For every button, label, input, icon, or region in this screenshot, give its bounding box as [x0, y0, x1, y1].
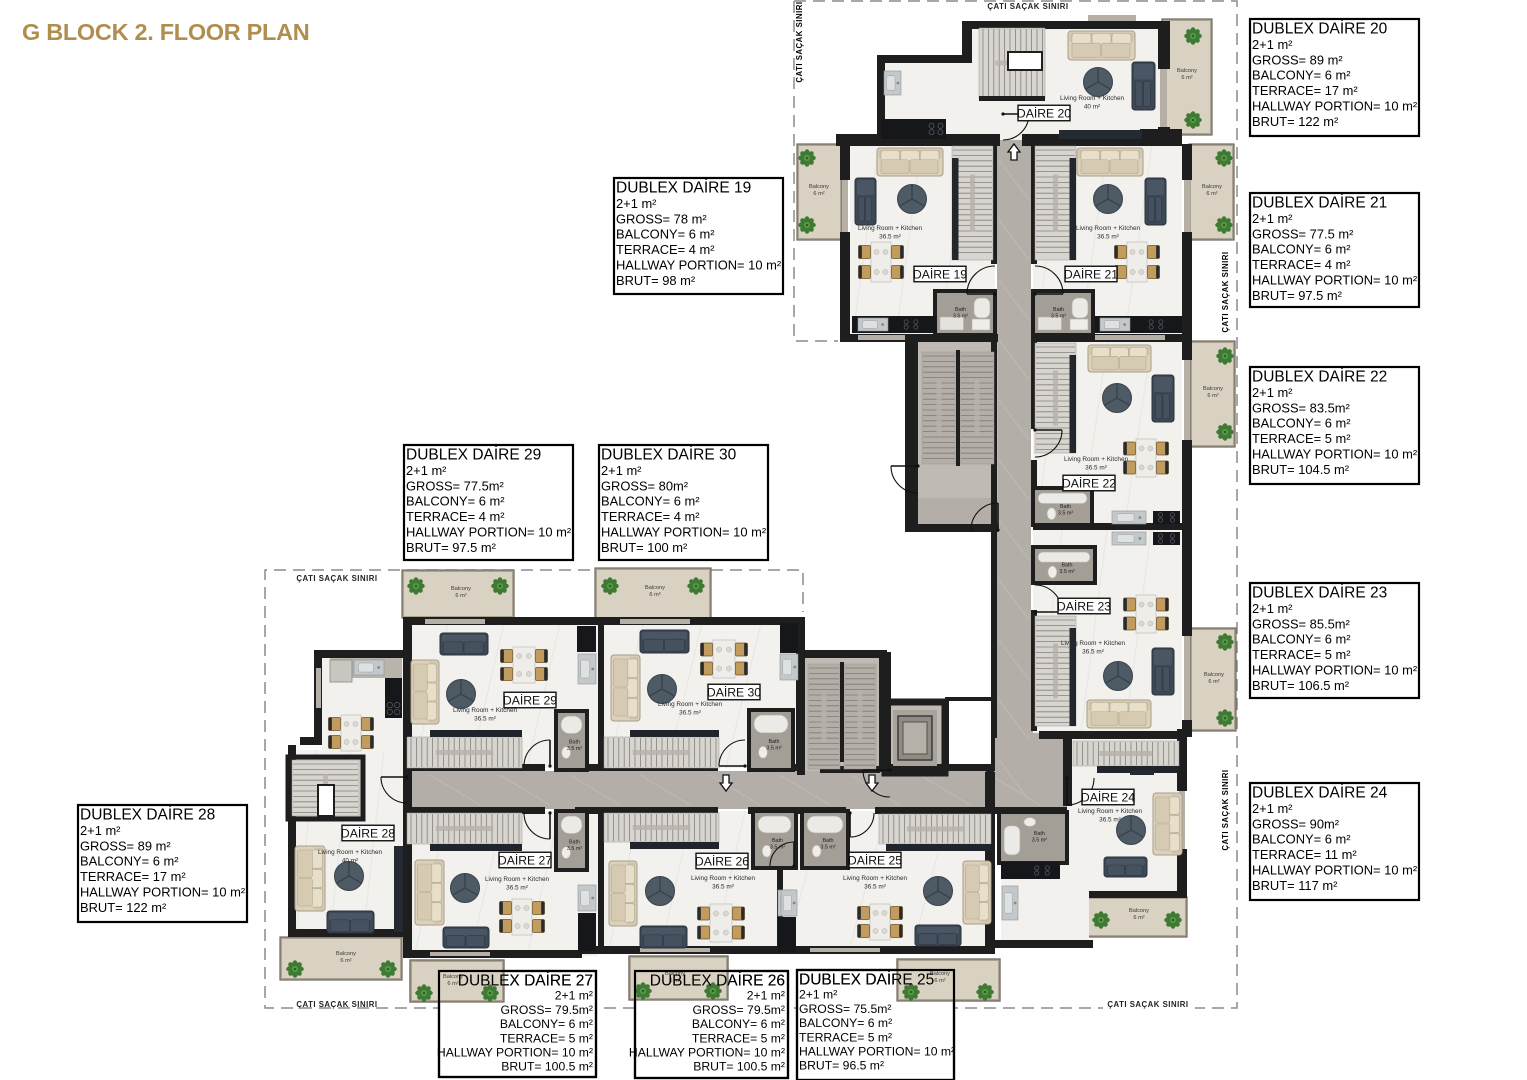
svg-text:ÇATI SAÇAK SINIRI: ÇATI SAÇAK SINIRI: [1221, 769, 1230, 850]
svg-text:6 m²: 6 m²: [1206, 191, 1217, 197]
svg-text:2+1 m²: 2+1 m²: [80, 823, 121, 838]
svg-text:6 m²: 6 m²: [340, 958, 351, 964]
svg-text:DAİRE 29: DAİRE 29: [503, 693, 557, 707]
svg-text:3.5 m²: 3.5 m²: [770, 845, 785, 851]
svg-text:HALLWAY PORTION= 10 m²: HALLWAY PORTION= 10 m²: [1252, 863, 1418, 878]
svg-text:BALCONY= 6 m²: BALCONY= 6 m²: [80, 854, 179, 869]
svg-text:DAİRE 27: DAİRE 27: [498, 853, 552, 867]
svg-text:3.5 m²: 3.5 m²: [766, 745, 781, 751]
svg-text:DUBLEX DAİRE 27: DUBLEX DAİRE 27: [458, 972, 593, 990]
svg-text:TERRACE= 17 m²: TERRACE= 17 m²: [80, 869, 186, 884]
svg-text:ÇATI SAÇAK SINIRI: ÇATI SAÇAK SINIRI: [1107, 1000, 1188, 1009]
svg-text:GROSS= 89 m²: GROSS= 89 m²: [80, 838, 171, 853]
svg-text:GROSS= 77.5 m²: GROSS= 77.5 m²: [1252, 226, 1354, 241]
svg-text:DAİRE 21: DAİRE 21: [1064, 267, 1118, 281]
svg-text:HALLWAY PORTION= 10 m²: HALLWAY PORTION= 10 m²: [1252, 99, 1418, 114]
svg-text:Bath: Bath: [955, 307, 966, 313]
svg-text:BRUT= 96.5 m²: BRUT= 96.5 m²: [799, 1059, 884, 1073]
svg-text:HALLWAY PORTION= 10 m²: HALLWAY PORTION= 10 m²: [1252, 663, 1418, 678]
svg-text:BRUT= 98 m²: BRUT= 98 m²: [616, 273, 696, 288]
svg-text:Bath: Bath: [569, 739, 580, 745]
svg-text:DUBLEX DAİRE 26: DUBLEX DAİRE 26: [650, 972, 785, 990]
svg-text:DUBLEX DAİRE 30: DUBLEX DAİRE 30: [601, 446, 737, 464]
svg-text:BRUT= 97.5 m²: BRUT= 97.5 m²: [406, 540, 497, 555]
svg-text:DUBLEX DAİRE 25: DUBLEX DAİRE 25: [799, 971, 934, 989]
svg-text:TERRACE= 4 m²: TERRACE= 4 m²: [616, 242, 715, 257]
svg-text:36.5 m²: 36.5 m²: [1082, 649, 1104, 656]
svg-text:GROSS= 75.5m²: GROSS= 75.5m²: [799, 1002, 891, 1016]
svg-text:HALLWAY PORTION= 10 m²: HALLWAY PORTION= 10 m²: [601, 525, 767, 540]
svg-text:BALCONY= 6 m²: BALCONY= 6 m²: [1252, 242, 1351, 257]
svg-text:2+1 m²: 2+1 m²: [1252, 37, 1293, 52]
svg-text:40 m²: 40 m²: [342, 858, 358, 865]
svg-text:BALCONY= 6 m²: BALCONY= 6 m²: [692, 1017, 785, 1031]
svg-text:BALCONY= 6 m²: BALCONY= 6 m²: [1252, 416, 1351, 431]
svg-text:HALLWAY PORTION= 10 m²: HALLWAY PORTION= 10 m²: [437, 1046, 593, 1060]
svg-text:2+1 m²: 2+1 m²: [1252, 801, 1293, 816]
svg-text:TERRACE= 11 m²: TERRACE= 11 m²: [1252, 847, 1357, 862]
svg-text:TERRACE= 4 m²: TERRACE= 4 m²: [601, 509, 700, 524]
svg-text:Living Room + Kitchen: Living Room + Kitchen: [658, 701, 723, 708]
svg-text:TERRACE= 5 m²: TERRACE= 5 m²: [799, 1030, 892, 1044]
svg-text:36.5 m²: 36.5 m²: [506, 885, 528, 892]
svg-text:DAİRE 24: DAİRE 24: [1081, 790, 1135, 804]
svg-text:Living Room + Kitchen: Living Room + Kitchen: [843, 875, 908, 882]
svg-text:36.5 m²: 36.5 m²: [679, 710, 701, 717]
svg-text:Balcony: Balcony: [645, 585, 665, 591]
svg-text:TERRACE= 4 m²: TERRACE= 4 m²: [406, 509, 505, 524]
svg-text:DUBLEX DAİRE 28: DUBLEX DAİRE 28: [80, 806, 215, 824]
svg-text:6 m²: 6 m²: [1133, 915, 1144, 921]
svg-text:BRUT= 106.5 m²: BRUT= 106.5 m²: [1252, 678, 1350, 693]
svg-text:3.5 m²: 3.5 m²: [1032, 838, 1047, 844]
svg-text:40 m²: 40 m²: [1084, 104, 1100, 111]
svg-text:BALCONY= 6 m²: BALCONY= 6 m²: [1252, 68, 1351, 83]
svg-text:DAİRE 25: DAİRE 25: [848, 853, 902, 867]
svg-text:2+1 m²: 2+1 m²: [1252, 385, 1293, 400]
svg-text:Living Room + Kitchen: Living Room + Kitchen: [485, 876, 550, 883]
svg-text:Balcony: Balcony: [1202, 184, 1222, 190]
svg-text:6 m²: 6 m²: [1208, 679, 1219, 685]
svg-text:GROSS= 85.5m²: GROSS= 85.5m²: [1252, 616, 1350, 631]
svg-text:6 m²: 6 m²: [934, 978, 945, 984]
svg-text:BRUT= 100 m²: BRUT= 100 m²: [601, 540, 688, 555]
svg-text:DUBLEX DAİRE 19: DUBLEX DAİRE 19: [616, 179, 751, 197]
svg-text:HALLWAY PORTION= 10 m²: HALLWAY PORTION= 10 m²: [406, 525, 572, 540]
svg-text:TERRACE= 4 m²: TERRACE= 4 m²: [1252, 257, 1351, 272]
svg-text:Living Room + Kitchen: Living Room + Kitchen: [1060, 95, 1125, 102]
svg-text:BRUT= 104.5 m²: BRUT= 104.5 m²: [1252, 462, 1350, 477]
svg-text:Balcony: Balcony: [1129, 908, 1149, 914]
svg-text:TERRACE= 5 m²: TERRACE= 5 m²: [1252, 431, 1351, 446]
svg-text:ÇATI SAÇAK SINIRI: ÇATI SAÇAK SINIRI: [296, 574, 377, 583]
svg-text:Balcony: Balcony: [1177, 68, 1197, 74]
svg-text:DUBLEX DAİRE 24: DUBLEX DAİRE 24: [1252, 784, 1388, 802]
svg-text:36.5 m²: 36.5 m²: [1099, 817, 1121, 824]
svg-text:Living Room + Kitchen: Living Room + Kitchen: [318, 849, 383, 856]
svg-text:Living Room + Kitchen: Living Room + Kitchen: [453, 707, 518, 714]
svg-text:6 m²: 6 m²: [455, 593, 466, 599]
svg-text:BRUT= 97.5 m²: BRUT= 97.5 m²: [1252, 288, 1343, 303]
svg-text:3.5 m²: 3.5 m²: [1059, 569, 1074, 575]
svg-text:GROSS= 78 m²: GROSS= 78 m²: [616, 211, 707, 226]
svg-text:3.5 m²: 3.5 m²: [953, 314, 968, 320]
svg-text:HALLWAY PORTION= 10 m²: HALLWAY PORTION= 10 m²: [799, 1045, 955, 1059]
svg-text:ÇATI SAÇAK SINIRI: ÇATI SAÇAK SINIRI: [795, 1, 804, 82]
svg-text:36.5 m²: 36.5 m²: [712, 884, 734, 891]
svg-text:36.5 m²: 36.5 m²: [474, 716, 496, 723]
svg-text:Bath: Bath: [1034, 831, 1045, 837]
svg-text:DUBLEX DAİRE 21: DUBLEX DAİRE 21: [1252, 194, 1387, 212]
svg-text:HALLWAY PORTION= 10 m²: HALLWAY PORTION= 10 m²: [616, 258, 782, 273]
svg-text:GROSS= 77.5m²: GROSS= 77.5m²: [406, 478, 504, 493]
svg-text:2+1 m²: 2+1 m²: [1252, 601, 1293, 616]
svg-text:Living Room + Kitchen: Living Room + Kitchen: [1061, 640, 1126, 647]
svg-text:36.5 m²: 36.5 m²: [1085, 465, 1107, 472]
svg-text:2+1 m²: 2+1 m²: [406, 463, 447, 478]
svg-text:HALLWAY PORTION= 10 m²: HALLWAY PORTION= 10 m²: [629, 1046, 785, 1060]
svg-text:TERRACE= 5 m²: TERRACE= 5 m²: [500, 1031, 593, 1045]
svg-text:Living Room + Kitchen: Living Room + Kitchen: [1064, 456, 1129, 463]
svg-text:Bath: Bath: [1053, 307, 1064, 313]
svg-text:DUBLEX DAİRE 29: DUBLEX DAİRE 29: [406, 446, 541, 464]
svg-text:ÇATI SAÇAK SINIRI: ÇATI SAÇAK SINIRI: [296, 1000, 377, 1009]
svg-text:Living Room + Kitchen: Living Room + Kitchen: [858, 225, 923, 232]
svg-text:TERRACE= 5 m²: TERRACE= 5 m²: [1252, 647, 1351, 662]
svg-text:Living Room + Kitchen: Living Room + Kitchen: [1078, 808, 1143, 815]
svg-text:DAİRE 20: DAİRE 20: [1017, 106, 1071, 120]
svg-text:BRUT= 122 m²: BRUT= 122 m²: [80, 900, 167, 915]
svg-text:DAİRE 26: DAİRE 26: [695, 854, 749, 868]
svg-text:Balcony: Balcony: [809, 184, 829, 190]
svg-text:GROSS= 83.5m²: GROSS= 83.5m²: [1252, 400, 1350, 415]
svg-text:GROSS= 79.5m²: GROSS= 79.5m²: [501, 1003, 593, 1017]
svg-text:36.5 m²: 36.5 m²: [1097, 234, 1119, 241]
svg-text:GROSS= 79.5m²: GROSS= 79.5m²: [693, 1003, 785, 1017]
svg-text:BRUT= 100.5 m²: BRUT= 100.5 m²: [693, 1060, 785, 1074]
svg-text:Balcony: Balcony: [1204, 672, 1224, 678]
svg-text:Bath: Bath: [1061, 563, 1072, 569]
svg-text:Bath: Bath: [569, 839, 580, 845]
svg-text:HALLWAY PORTION= 10 m²: HALLWAY PORTION= 10 m²: [1252, 273, 1418, 288]
svg-text:3.5 m²: 3.5 m²: [820, 845, 835, 851]
svg-text:DAİRE 23: DAİRE 23: [1057, 599, 1111, 613]
svg-text:G BLOCK 2. FLOOR PLAN: G BLOCK 2. FLOOR PLAN: [22, 19, 309, 45]
svg-text:BRUT= 117 m²: BRUT= 117 m²: [1252, 878, 1338, 893]
svg-text:ÇATI SAÇAK SINIRI: ÇATI SAÇAK SINIRI: [1221, 251, 1230, 332]
svg-text:Bath: Bath: [822, 838, 833, 844]
svg-text:TERRACE= 17 m²: TERRACE= 17 m²: [1252, 83, 1358, 98]
svg-text:6 m²: 6 m²: [1181, 75, 1192, 81]
svg-text:3.5 m²: 3.5 m²: [567, 746, 582, 752]
svg-text:Bath: Bath: [768, 739, 779, 745]
svg-text:HALLWAY PORTION= 10 m²: HALLWAY PORTION= 10 m²: [80, 885, 246, 900]
svg-text:Bath: Bath: [1060, 504, 1071, 510]
svg-text:BALCONY= 6 m²: BALCONY= 6 m²: [500, 1017, 593, 1031]
svg-text:2+1 m²: 2+1 m²: [601, 463, 642, 478]
svg-text:BALCONY= 6 m²: BALCONY= 6 m²: [406, 494, 505, 509]
svg-text:2+1 m²: 2+1 m²: [799, 988, 837, 1002]
svg-text:Living Room + Kitchen: Living Room + Kitchen: [691, 875, 756, 882]
svg-text:Balcony: Balcony: [1203, 386, 1223, 392]
svg-text:3.5 m²: 3.5 m²: [567, 846, 582, 852]
svg-text:2+1 m²: 2+1 m²: [616, 196, 657, 211]
svg-text:DUBLEX DAİRE 22: DUBLEX DAİRE 22: [1252, 368, 1387, 386]
svg-text:HALLWAY PORTION= 10 m²: HALLWAY PORTION= 10 m²: [1252, 447, 1418, 462]
svg-text:36.5 m²: 36.5 m²: [879, 234, 901, 241]
svg-text:BRUT= 100.5 m²: BRUT= 100.5 m²: [501, 1060, 593, 1074]
svg-text:BALCONY= 6 m²: BALCONY= 6 m²: [616, 227, 715, 242]
svg-text:GROSS= 89 m²: GROSS= 89 m²: [1252, 52, 1343, 67]
svg-text:6 m²: 6 m²: [649, 592, 660, 598]
svg-text:ÇATI SAÇAK SINIRI: ÇATI SAÇAK SINIRI: [987, 2, 1068, 11]
svg-text:Balcony: Balcony: [451, 586, 471, 592]
svg-text:BRUT= 122 m²: BRUT= 122 m²: [1252, 114, 1339, 129]
svg-text:DAİRE 30: DAİRE 30: [707, 685, 761, 699]
svg-text:BALCONY= 6 m²: BALCONY= 6 m²: [1252, 832, 1351, 847]
svg-text:TERRACE= 5 m²: TERRACE= 5 m²: [692, 1031, 785, 1045]
svg-text:Bath: Bath: [772, 838, 783, 844]
svg-text:DUBLEX DAİRE 23: DUBLEX DAİRE 23: [1252, 584, 1387, 602]
svg-text:DAİRE 22: DAİRE 22: [1062, 476, 1116, 490]
svg-text:DUBLEX DAİRE 20: DUBLEX DAİRE 20: [1252, 20, 1388, 38]
svg-text:Living Room + Kitchen: Living Room + Kitchen: [1076, 225, 1141, 232]
svg-text:BALCONY= 6 m²: BALCONY= 6 m²: [601, 494, 700, 509]
svg-text:6 m²: 6 m²: [813, 191, 824, 197]
svg-text:GROSS= 90m²: GROSS= 90m²: [1252, 816, 1340, 831]
svg-text:DAİRE 19: DAİRE 19: [913, 267, 967, 281]
svg-text:36.5 m²: 36.5 m²: [864, 884, 886, 891]
svg-text:BALCONY= 6 m²: BALCONY= 6 m²: [1252, 632, 1351, 647]
svg-text:3.5 m²: 3.5 m²: [1058, 511, 1073, 517]
svg-text:2+1 m²: 2+1 m²: [555, 989, 593, 1003]
svg-text:DAİRE 28: DAİRE 28: [341, 826, 395, 840]
svg-text:6 m²: 6 m²: [1207, 393, 1218, 399]
svg-text:2+1 m²: 2+1 m²: [1252, 211, 1293, 226]
svg-text:Balcony: Balcony: [336, 951, 356, 957]
svg-text:BALCONY= 6 m²: BALCONY= 6 m²: [799, 1016, 892, 1030]
svg-text:3.5 m²: 3.5 m²: [1051, 314, 1066, 320]
svg-text:2+1 m²: 2+1 m²: [747, 989, 785, 1003]
svg-text:GROSS= 80m²: GROSS= 80m²: [601, 478, 689, 493]
